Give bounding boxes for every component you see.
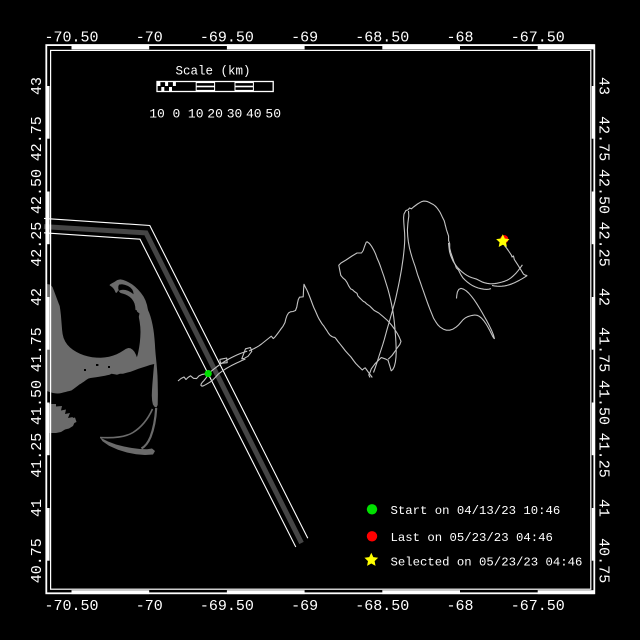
svg-text:42.50: 42.50 [595,169,612,214]
svg-text:43: 43 [595,77,612,95]
svg-text:41.25: 41.25 [595,433,612,478]
svg-text:41.75: 41.75 [595,327,612,372]
svg-text:50: 50 [265,107,281,122]
svg-text:Scale (km): Scale (km) [175,65,250,79]
svg-text:-69.50: -69.50 [200,598,254,615]
svg-text:-70: -70 [136,30,163,47]
svg-text:30: 30 [227,107,243,122]
svg-text:42.25: 42.25 [29,222,46,267]
svg-text:41: 41 [595,499,612,517]
svg-text:41.50: 41.50 [595,380,612,425]
svg-text:-68: -68 [446,30,473,47]
svg-text:-68.50: -68.50 [355,30,409,47]
svg-text:41: 41 [29,499,46,517]
svg-text:-68.50: -68.50 [355,598,409,615]
svg-text:42: 42 [29,288,46,306]
svg-text:41.25: 41.25 [29,433,46,478]
svg-text:42.25: 42.25 [595,222,612,267]
svg-text:41.50: 41.50 [29,380,46,425]
svg-text:-70: -70 [136,598,163,615]
svg-text:-70.50: -70.50 [44,30,98,47]
svg-text:-67.50: -67.50 [511,598,565,615]
svg-text:42.50: 42.50 [29,169,46,214]
svg-text:40.75: 40.75 [595,538,612,583]
svg-text:-67.50: -67.50 [511,30,565,47]
svg-text:-70.50: -70.50 [44,598,98,615]
svg-text:42.75: 42.75 [595,116,612,161]
svg-text:-69.50: -69.50 [200,30,254,47]
svg-text:-69: -69 [291,30,318,47]
svg-text:0: 0 [172,107,180,122]
svg-text:-68: -68 [446,598,473,615]
svg-text:-69: -69 [291,598,318,615]
svg-text:Start on 04/13/23 10:46: Start on 04/13/23 10:46 [391,504,561,518]
svg-text:43: 43 [29,77,46,95]
svg-text:20: 20 [207,107,223,122]
svg-text:41.75: 41.75 [29,327,46,372]
svg-text:40.75: 40.75 [29,538,46,583]
svg-text:10: 10 [188,107,204,122]
svg-text:42.75: 42.75 [29,116,46,161]
svg-text:42: 42 [595,288,612,306]
svg-text:40: 40 [246,107,262,122]
svg-text:10: 10 [149,107,165,122]
svg-text:Selected on 05/23/23 04:46: Selected on 05/23/23 04:46 [391,556,583,570]
svg-text:Last on 05/23/23 04:46: Last on 05/23/23 04:46 [391,531,553,545]
